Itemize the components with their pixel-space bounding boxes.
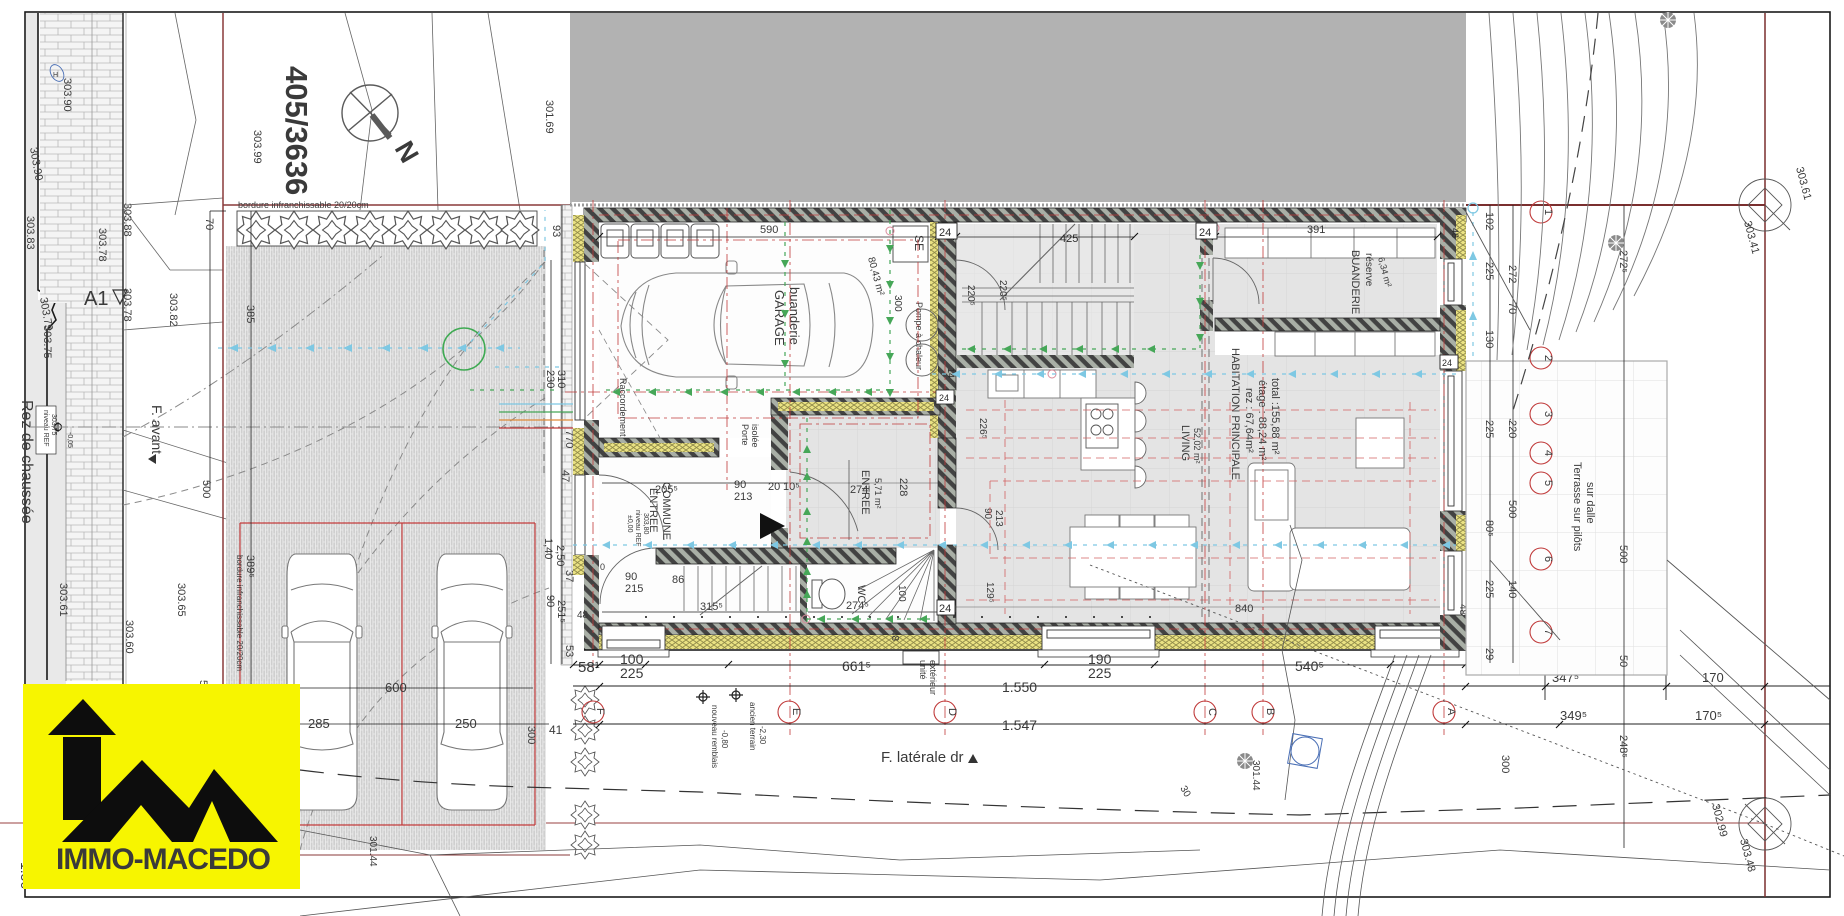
svg-text:±0,00: ±0,00 (626, 515, 633, 533)
svg-text:7: 7 (1542, 629, 1554, 635)
svg-text:500: 500 (1617, 545, 1629, 563)
svg-text:buanderie: buanderie (787, 287, 802, 345)
svg-text:600: 600 (385, 680, 407, 695)
svg-text:303.61: 303.61 (57, 583, 69, 617)
svg-text:250: 250 (455, 716, 477, 731)
svg-text:1.547: 1.547 (1002, 717, 1037, 733)
svg-text:274: 274 (850, 484, 868, 496)
svg-text:102: 102 (1483, 212, 1495, 230)
svg-text:1: 1 (1542, 209, 1554, 215)
svg-text:225: 225 (1483, 580, 1495, 598)
svg-text:étage : 88,24 m²: étage : 88,24 m² (1256, 380, 1268, 460)
svg-text:A: A (1445, 708, 1457, 716)
svg-text:248⁵: 248⁵ (1617, 735, 1629, 758)
svg-text:GARAGE: GARAGE (772, 290, 787, 346)
svg-text:90: 90 (544, 595, 556, 607)
svg-text:extérieur: extérieur (928, 660, 938, 695)
svg-text:-0,05: -0,05 (66, 432, 73, 448)
svg-text:IMMO-MACEDO: IMMO-MACEDO (56, 843, 271, 876)
svg-text:Porte: Porte (740, 424, 750, 446)
svg-text:90: 90 (734, 479, 746, 491)
svg-text:BUANDERIE: BUANDERIE (1349, 250, 1361, 314)
svg-text:300: 300 (892, 295, 903, 312)
svg-text:303.88: 303.88 (121, 203, 133, 237)
svg-text:2,50: 2,50 (554, 545, 566, 566)
svg-text:170⁵: 170⁵ (1695, 708, 1722, 723)
svg-text:6: 6 (1542, 556, 1554, 562)
svg-text:24: 24 (1442, 358, 1452, 368)
svg-text:bordure infranchissable 20/20c: bordure infranchissable 20/20cm (238, 200, 369, 210)
svg-text:24: 24 (939, 227, 951, 239)
svg-text:D: D (946, 708, 958, 716)
svg-text:140: 140 (1506, 580, 1518, 598)
svg-text:80⁵: 80⁵ (1483, 520, 1495, 537)
svg-text:170: 170 (1702, 670, 1724, 685)
svg-text:272: 272 (1506, 265, 1518, 283)
svg-text:SE: SE (912, 235, 926, 251)
svg-text:300: 300 (525, 726, 537, 744)
svg-text:285: 285 (308, 716, 330, 731)
svg-text:213: 213 (993, 510, 1004, 527)
svg-text:48: 48 (1450, 228, 1460, 238)
svg-text:47: 47 (559, 470, 571, 482)
svg-text:H: H (53, 72, 58, 79)
svg-text:301.69: 301.69 (543, 100, 555, 134)
svg-text:nouveau remblais: nouveau remblais (710, 705, 719, 768)
svg-text:réserve: réserve (1363, 253, 1374, 287)
svg-text:251⁵: 251⁵ (555, 600, 567, 623)
svg-text:-0,80: -0,80 (720, 730, 729, 749)
svg-text:F. avant: F. avant (149, 405, 165, 454)
svg-text:100: 100 (896, 585, 907, 602)
svg-text:349⁵: 349⁵ (1560, 708, 1587, 723)
svg-text:303.60: 303.60 (123, 620, 135, 654)
svg-text:B: B (1264, 708, 1276, 715)
svg-text:0: 0 (600, 562, 605, 572)
svg-text:C: C (1206, 708, 1218, 716)
svg-text:300: 300 (1499, 755, 1511, 773)
svg-text:F: F (594, 708, 606, 715)
svg-text:24: 24 (1199, 227, 1211, 239)
svg-text:F. latérale dr: F. latérale dr (881, 749, 964, 766)
svg-text:215: 215 (625, 583, 643, 595)
svg-text:-2,30: -2,30 (758, 726, 767, 745)
svg-text:1.550: 1.550 (1002, 679, 1037, 695)
svg-text:500: 500 (1506, 500, 1518, 518)
svg-text:50: 50 (1617, 655, 1629, 667)
svg-text:Pompe à chaleur: Pompe à chaleur (914, 302, 924, 370)
svg-text:425: 425 (1060, 233, 1078, 245)
svg-text:385: 385 (244, 305, 256, 323)
svg-text:Rez de chaussée: Rez de chaussée (18, 400, 35, 524)
svg-text:3: 3 (1542, 411, 1554, 417)
svg-text:isolée: isolée (750, 424, 760, 448)
svg-text:540⁵: 540⁵ (1295, 658, 1324, 674)
svg-text:205⁵: 205⁵ (655, 484, 678, 496)
svg-text:303.83: 303.83 (24, 216, 36, 250)
svg-text:213: 213 (734, 491, 752, 503)
svg-text:E: E (790, 708, 802, 715)
svg-text:405/3636: 405/3636 (279, 66, 314, 195)
svg-text:2: 2 (1542, 355, 1554, 361)
svg-text:90: 90 (982, 508, 993, 520)
svg-text:24: 24 (939, 393, 949, 403)
svg-text:WC: WC (855, 585, 867, 603)
svg-text:niveau REF: niveau REF (634, 510, 641, 547)
svg-text:315⁵: 315⁵ (700, 601, 723, 613)
svg-text:48: 48 (889, 630, 900, 642)
svg-text:86: 86 (672, 574, 684, 586)
svg-text:unité: unité (918, 660, 928, 680)
svg-text:90: 90 (625, 571, 637, 583)
svg-text:303.99: 303.99 (251, 130, 263, 164)
svg-text:272⁵: 272⁵ (1617, 250, 1629, 273)
svg-text:228: 228 (897, 478, 909, 496)
svg-text:total :155,88 m²: total :155,88 m² (1269, 378, 1281, 455)
svg-text:24: 24 (939, 603, 951, 615)
svg-text:590: 590 (760, 224, 778, 236)
svg-text:41: 41 (549, 723, 563, 737)
svg-text:70: 70 (203, 218, 215, 230)
svg-text:5,71 m²: 5,71 m² (873, 478, 883, 509)
svg-text:303.75: 303.75 (41, 325, 53, 359)
svg-text:48: 48 (577, 610, 589, 621)
svg-text:29: 29 (1483, 648, 1495, 660)
svg-text:661⁵: 661⁵ (842, 658, 871, 674)
svg-text:53: 53 (563, 645, 575, 657)
svg-text:500: 500 (200, 480, 212, 498)
svg-text:niveau REF: niveau REF (42, 410, 49, 447)
svg-text:840: 840 (1235, 603, 1253, 615)
svg-text:303.78: 303.78 (121, 288, 133, 322)
svg-text:220⁵: 220⁵ (997, 280, 1008, 301)
svg-text:303.90: 303.90 (61, 78, 73, 112)
svg-text:301.44: 301.44 (1250, 760, 1261, 791)
svg-text:391: 391 (1307, 224, 1325, 236)
svg-text:230: 230 (544, 370, 556, 388)
svg-text:303.78: 303.78 (96, 228, 108, 262)
svg-text:225: 225 (620, 665, 644, 681)
svg-text:220⁵: 220⁵ (965, 285, 976, 306)
svg-text:bordure infranchissable 20/20c: bordure infranchissable 20/20cm (235, 555, 244, 671)
svg-text:225: 225 (1483, 262, 1495, 280)
svg-text:5: 5 (1542, 480, 1554, 486)
svg-text:4: 4 (1542, 450, 1554, 456)
svg-text:301.44: 301.44 (367, 836, 378, 867)
svg-text:93: 93 (550, 225, 562, 237)
svg-text:1,40: 1,40 (542, 538, 554, 559)
svg-text:303.82: 303.82 (167, 293, 179, 327)
svg-text:A1: A1 (84, 288, 108, 310)
svg-text:389⁵: 389⁵ (244, 555, 256, 578)
svg-text:HABITATION PRINCIPALE: HABITATION PRINCIPALE (1229, 348, 1241, 480)
svg-text:303.65: 303.65 (175, 583, 187, 617)
svg-text:rez : 67,64m²: rez : 67,64m² (1243, 388, 1255, 453)
svg-text:220: 220 (1506, 420, 1518, 438)
svg-text:Raccordement: Raccordement (618, 378, 628, 437)
svg-text:LIVING: LIVING (1179, 425, 1191, 461)
svg-text:225: 225 (1088, 665, 1112, 681)
svg-text:303,80: 303,80 (642, 513, 649, 535)
svg-text:Terrasse sur pilôts: Terrasse sur pilôts (1571, 462, 1583, 552)
svg-text:225: 225 (1483, 420, 1495, 438)
svg-text:226⁵: 226⁵ (977, 418, 988, 439)
svg-text:sur dalle: sur dalle (1584, 482, 1596, 524)
svg-text:14: 14 (946, 368, 956, 378)
